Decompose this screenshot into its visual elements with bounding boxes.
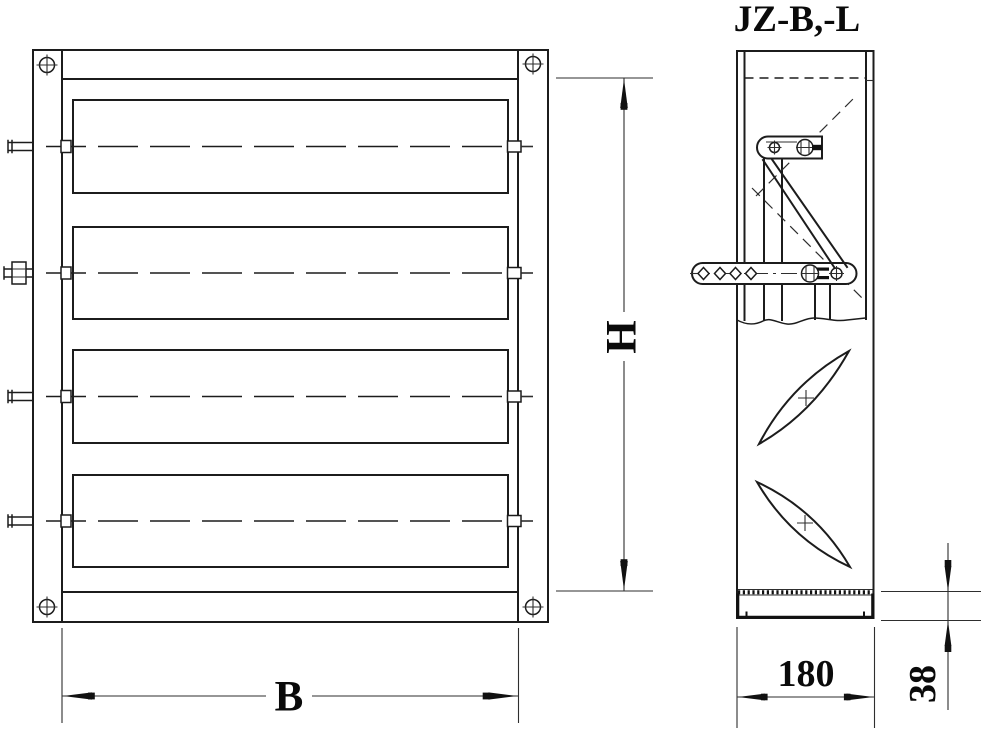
connecting-link <box>763 158 847 273</box>
blade-1-axle-pin-left <box>8 141 33 153</box>
blade-axle-arm-lower <box>815 284 830 319</box>
blade-3-axle-pin-right <box>508 391 534 402</box>
dimension-width-B: B <box>62 628 519 723</box>
corner-screw-top-left <box>37 55 58 76</box>
crank-linkage-mechanism <box>690 99 864 320</box>
arrowhead-right <box>847 694 874 701</box>
blade-2-axle-pin-right <box>508 268 534 279</box>
technical-drawing-louver-damper: H B <box>0 0 1000 729</box>
arrowhead-right <box>489 692 518 699</box>
dimension-flange-38: 38 <box>881 543 981 710</box>
blade-4-axle-pin-left <box>8 515 33 527</box>
dimension-height-H: H <box>556 78 653 591</box>
blade-4-bearing-left <box>61 515 71 527</box>
blade-axle-arm-upper <box>764 158 782 320</box>
blade-section-upper <box>759 351 849 444</box>
front-view <box>4 50 548 622</box>
arrowhead-left <box>63 692 92 699</box>
blade-3-axle-pin-left <box>8 391 33 403</box>
blade-2-bearing-left <box>61 267 71 279</box>
blade-1-axle-pin-right <box>508 141 534 152</box>
width-dimension-label: B <box>275 674 304 721</box>
blade-section-lower <box>757 482 850 567</box>
arrowhead-down <box>945 566 952 591</box>
height-dimension-label: H <box>599 320 646 353</box>
blade-2-drive-shaft <box>4 262 33 284</box>
blade-3-bearing-left <box>61 391 71 403</box>
blade-1-bearing-left <box>61 141 71 153</box>
blade-4-axle-pin-right <box>508 516 534 527</box>
corner-screw-bottom-left <box>37 597 58 618</box>
corner-screw-top-right <box>523 54 544 75</box>
flange-dimension-label: 38 <box>902 665 944 703</box>
dimension-depth-180: 180 <box>737 627 875 728</box>
arrowhead-left <box>738 694 765 701</box>
depth-dimension-label: 180 <box>778 653 835 695</box>
corner-screw-bottom-right <box>523 597 544 618</box>
side-view <box>690 51 874 618</box>
arrowhead-up <box>945 621 952 646</box>
break-line <box>737 318 866 324</box>
bottom-flange <box>738 590 873 618</box>
frame-outline <box>33 50 548 622</box>
drawing-title: JZ-B,-L <box>734 0 860 40</box>
